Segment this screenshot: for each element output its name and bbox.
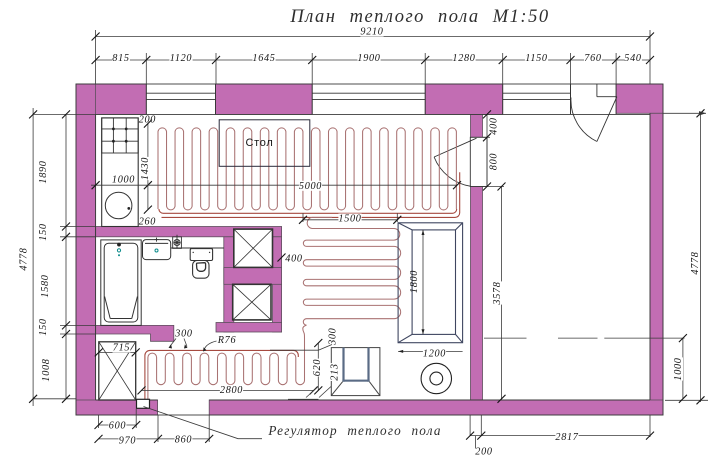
svg-text:815: 815	[112, 53, 129, 64]
svg-text:1580: 1580	[40, 274, 51, 297]
svg-text:4778: 4778	[19, 247, 30, 270]
svg-text:760: 760	[584, 53, 601, 64]
svg-text:1000: 1000	[673, 357, 684, 380]
svg-text:1430: 1430	[140, 157, 151, 180]
svg-text:1008: 1008	[41, 358, 52, 381]
svg-text:400: 400	[489, 117, 500, 134]
svg-text:600: 600	[109, 421, 126, 432]
svg-text:1645: 1645	[252, 53, 275, 64]
svg-text:970: 970	[119, 436, 136, 447]
svg-text:300: 300	[328, 328, 339, 346]
svg-text:1890: 1890	[38, 160, 49, 183]
svg-text:200: 200	[139, 115, 156, 126]
svg-text:3578: 3578	[492, 281, 503, 305]
svg-text:4778: 4778	[690, 251, 701, 274]
svg-text:150: 150	[38, 223, 49, 240]
svg-text:300: 300	[174, 329, 192, 340]
svg-text:1150: 1150	[525, 53, 547, 64]
svg-text:1500: 1500	[338, 214, 361, 225]
svg-text:2817: 2817	[555, 432, 578, 443]
svg-text:5000: 5000	[299, 181, 322, 192]
svg-text:540: 540	[624, 53, 641, 64]
svg-text:1200: 1200	[423, 349, 446, 360]
svg-text:150: 150	[38, 318, 49, 335]
svg-text:План теплого пола М1:50: План теплого пола М1:50	[289, 7, 549, 27]
svg-text:1800: 1800	[409, 270, 420, 293]
svg-text:1280: 1280	[452, 53, 475, 64]
svg-text:260: 260	[139, 217, 156, 228]
svg-text:1000: 1000	[112, 175, 135, 186]
svg-text:800: 800	[489, 153, 500, 170]
svg-text:1120: 1120	[170, 53, 192, 64]
svg-text:1900: 1900	[357, 53, 380, 64]
svg-text:9210: 9210	[360, 27, 383, 38]
svg-text:200: 200	[475, 447, 492, 458]
svg-text:400: 400	[285, 254, 302, 265]
svg-text:2800: 2800	[220, 385, 243, 396]
svg-text:R76: R76	[217, 335, 237, 346]
svg-text:715: 715	[113, 343, 130, 354]
svg-text:Регулятор теплого пола: Регулятор теплого пола	[267, 423, 441, 438]
svg-text:213: 213	[330, 363, 341, 380]
svg-text:Стол: Стол	[246, 137, 274, 149]
svg-text:620: 620	[312, 359, 323, 376]
svg-text:860: 860	[175, 435, 192, 446]
